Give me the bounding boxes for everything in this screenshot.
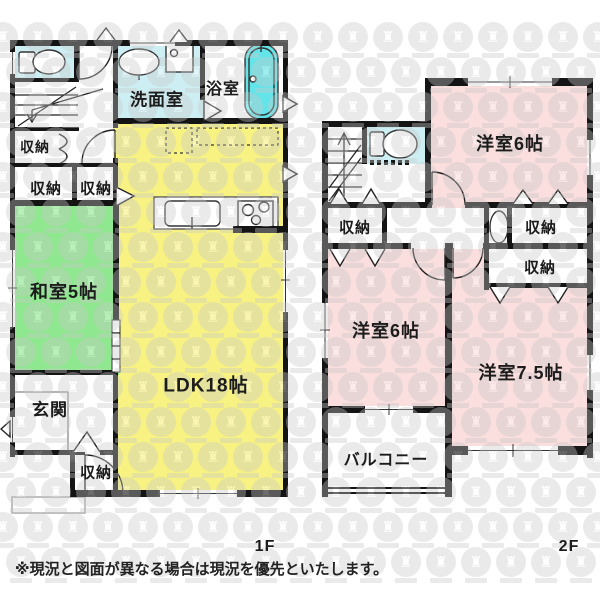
room-label-japanese: 和室5帖	[30, 278, 98, 304]
vent-bath	[283, 96, 297, 112]
window-1f-entrance	[10, 417, 15, 442]
room-label-storage2: 収納	[30, 178, 62, 199]
window-1f-top	[130, 40, 175, 46]
room-label-storage-rb: 収納	[524, 257, 556, 278]
roof-vent-2	[170, 30, 188, 42]
room-label-storage-left: 収納	[339, 217, 371, 238]
porch-outline	[12, 497, 85, 513]
toilet-icon-1f	[19, 50, 65, 74]
floor-label-1f: 1F	[255, 538, 276, 556]
vent-ldk	[283, 166, 297, 182]
room-label-washroom: 洗面室	[130, 86, 184, 111]
room-label-entrance: 玄関	[32, 396, 68, 421]
floorplan-canvas: 洗面室 浴室 収納 収納 収納 和室5帖 LDK18帖 玄関 収納 洋室6帖 収…	[0, 0, 600, 600]
entrance-side-window-mark	[1, 421, 10, 437]
disclaimer-note: ※現況と図面が異なる場合は現況を優先といたします。	[15, 558, 388, 579]
room-label-western6-top: 洋室6帖	[476, 130, 544, 156]
floor-label-2f: 2F	[559, 538, 580, 556]
sliding-door-japanese	[112, 320, 120, 372]
room-label-western75: 洋室7.5帖	[478, 359, 563, 385]
room-label-storage1: 収納	[20, 137, 50, 157]
roof-vent-1	[97, 28, 115, 40]
toilet-icon-2f	[370, 130, 417, 158]
room-label-storage4: 収納	[80, 462, 112, 483]
kitchen-counter	[154, 197, 278, 229]
room-label-ldk: LDK18帖	[163, 371, 248, 398]
room-label-bath: 浴室	[206, 75, 240, 99]
room-label-western6-bottom: 洋室6帖	[352, 317, 420, 343]
window-2f-right-bottom	[587, 355, 593, 390]
window-2f-right-top	[587, 140, 593, 175]
fixture-oval	[490, 211, 508, 243]
window-1f-toilet	[10, 52, 15, 74]
room-label-balcony: バルコニー	[344, 446, 429, 470]
room-ldk	[113, 118, 288, 497]
room-label-storage3: 収納	[80, 178, 112, 199]
washer-icon	[166, 45, 193, 72]
stove-icon	[238, 201, 273, 227]
bathtub-icon	[245, 44, 278, 119]
room-label-storage-rt: 収納	[525, 217, 557, 238]
